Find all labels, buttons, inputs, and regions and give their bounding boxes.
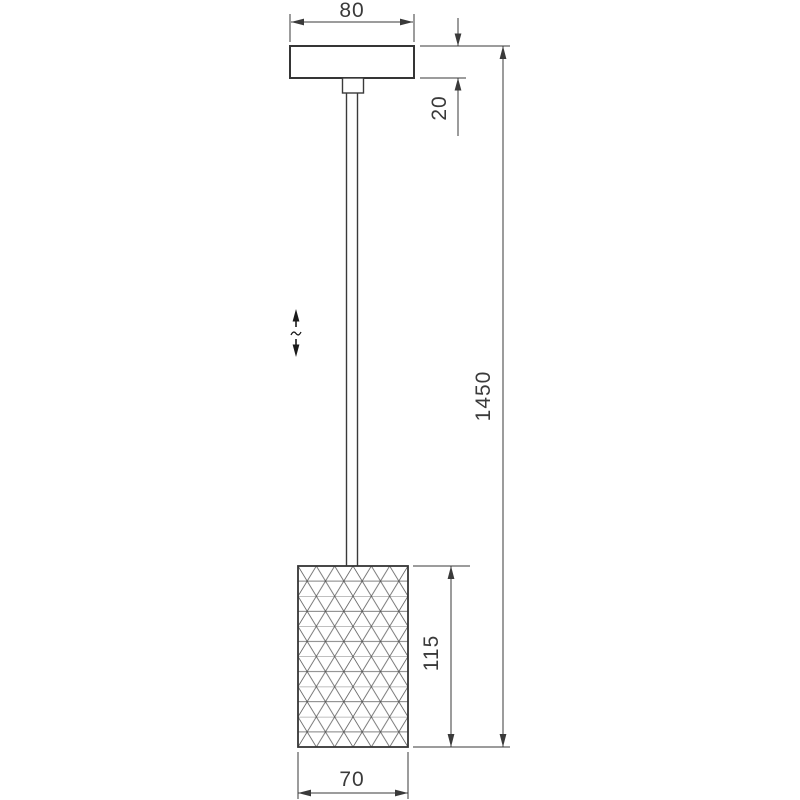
- dim-label-overall-height: 1450: [472, 371, 495, 422]
- dim-shade-height: 115: [413, 566, 510, 747]
- lamp-body: [290, 46, 414, 747]
- pendant-lamp-dimension-drawing: 80 20 1450: [0, 0, 800, 800]
- arrow-up-icon: [455, 78, 462, 91]
- dim-label-shade-width: 70: [339, 768, 364, 791]
- dim-shade-width: 70: [298, 752, 408, 799]
- height-adjustable-icon: [291, 309, 301, 357]
- dim-label-canopy-height: 20: [428, 95, 451, 120]
- drawing-canvas: 80 20 1450: [0, 0, 800, 800]
- arrow-left-icon: [298, 790, 311, 797]
- cord-connector: [343, 78, 364, 93]
- arrow-right-icon: [400, 19, 413, 26]
- break-tilde-mark: [291, 332, 301, 335]
- lamp-shade: [298, 566, 408, 747]
- suspension-rod: [347, 93, 358, 566]
- arrow-down-icon: [448, 734, 455, 747]
- arrow-down-icon: [455, 34, 462, 47]
- arrow-up-icon: [500, 46, 507, 59]
- arrow-left-icon: [291, 19, 304, 26]
- dim-overall-height: 1450: [472, 46, 506, 747]
- dim-canopy-width: 80: [290, 0, 414, 42]
- dim-label-shade-height: 115: [420, 635, 443, 671]
- arrow-right-icon: [395, 790, 408, 797]
- arrow-up-icon: [448, 566, 455, 579]
- dim-canopy-height: 20: [420, 18, 510, 136]
- ceiling-canopy: [290, 46, 414, 78]
- arrow-down-icon: [500, 734, 507, 747]
- dim-label-canopy-width: 80: [339, 0, 364, 22]
